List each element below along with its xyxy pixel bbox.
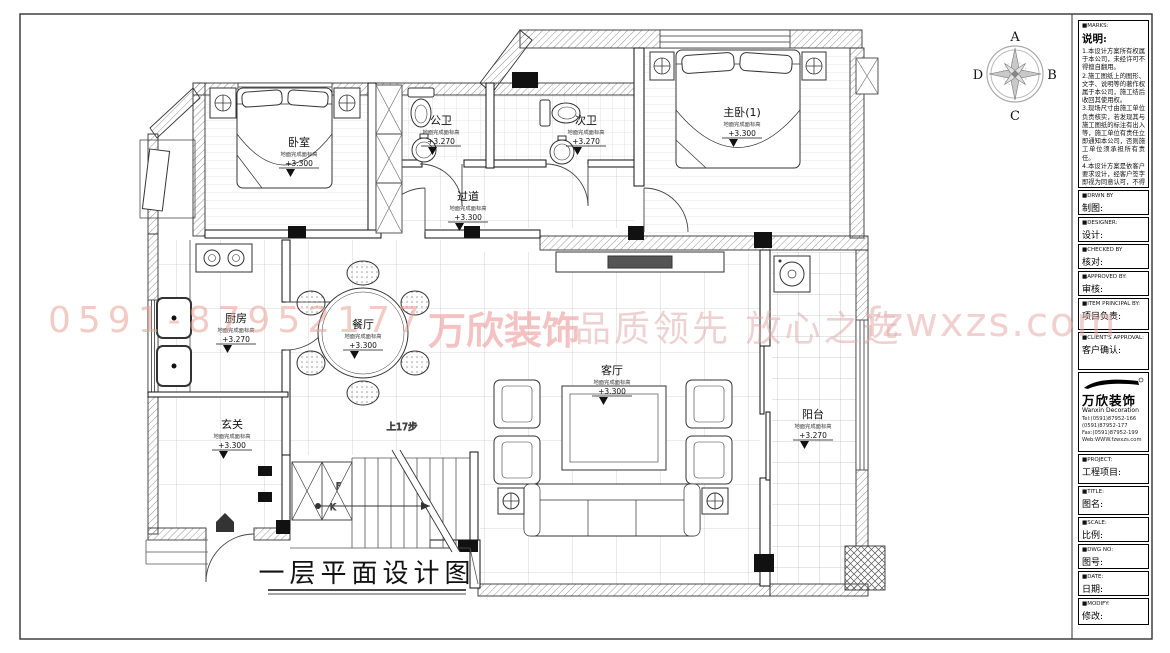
compass-label-left: D: [973, 68, 983, 83]
principal-header: ■ITEM PRINCIPAL BY:: [1082, 301, 1145, 307]
bedroom-wardrobe: [376, 85, 402, 233]
lamp-icon: [215, 95, 231, 111]
scale-header: ■SCALE:: [1082, 520, 1145, 526]
svg-text:厨房: 厨房: [225, 312, 247, 325]
svg-text:餐厅: 餐厅: [352, 317, 374, 331]
project-box: ■PROJECT: 工程项目:: [1078, 454, 1149, 484]
svg-text:公卫: 公卫: [430, 114, 452, 127]
armchair: [686, 380, 732, 428]
svg-text:玄关: 玄关: [221, 417, 243, 431]
drawn-by-label: 制图:: [1082, 201, 1145, 214]
stair-label: 上17步: [386, 422, 417, 433]
drawn-by-header: ■DRWN BY: [1082, 193, 1145, 199]
compass-rose: A B C D: [973, 30, 1057, 124]
svg-text:客厅: 客厅: [601, 363, 623, 377]
company-name: 万欣装饰: [1082, 394, 1145, 407]
sheet-title-label: 图名:: [1082, 497, 1145, 510]
svg-text:卧室: 卧室: [288, 135, 310, 149]
marks-title: 说明:: [1082, 31, 1145, 46]
svg-text:过道: 过道: [457, 189, 479, 203]
company-fax: Fax:(0591)87952-199: [1082, 430, 1145, 437]
designer-header: ■DESIGNER:: [1082, 220, 1145, 226]
coffee-table: [562, 386, 666, 470]
checked-by-header: ■CHECKED BY: [1082, 247, 1145, 253]
company-tel-1: Tel:(0591)87952-166: [1082, 416, 1145, 423]
lamp-icon: [654, 58, 670, 74]
svg-text:+3.270: +3.270: [427, 137, 455, 146]
company-name-en: Wanxin Decoration: [1082, 407, 1145, 414]
company-tel-2: (0591)87952-177: [1082, 423, 1145, 430]
drawn-by-box: ■DRWN BY 制图:: [1078, 190, 1149, 215]
balcony-items: [774, 256, 810, 292]
company-logo-box: 万欣装饰 Wanxin Decoration Tel:(0591)87952-1…: [1078, 372, 1149, 452]
master-window: [660, 30, 790, 48]
svg-text:+3.270: +3.270: [222, 335, 250, 344]
stove-icon: [196, 244, 252, 272]
client-approval-label: 客户确认:: [1082, 343, 1145, 356]
svg-text:阳台: 阳台: [802, 407, 824, 421]
compass-label-right: B: [1047, 68, 1057, 83]
floor-plan-canvas: A B C D: [0, 0, 1170, 653]
svg-text:地面完成面标高: 地面完成面标高: [567, 128, 604, 136]
svg-text:+3.300: +3.300: [598, 387, 626, 396]
date-label: 日期:: [1082, 582, 1145, 595]
date-header: ■DATE:: [1082, 574, 1145, 580]
modify-header: ■MODIFY:: [1082, 601, 1145, 607]
client-approval-box: ■CLIENT'S APPROVAL: 客户确认:: [1078, 332, 1149, 370]
sheet-title-box: ■TITLE: 图名:: [1078, 486, 1149, 515]
armchair: [686, 436, 732, 484]
designer-box: ■DESIGNER: 设计:: [1078, 217, 1149, 242]
svg-text:地面完成面标高: 地面完成面标高: [422, 128, 459, 136]
company-web: Web:WWW.fzwxzs.com: [1082, 437, 1145, 444]
svg-text:地面完成面标高: 地面完成面标高: [794, 422, 831, 430]
drawing-title: 一层平面设计图: [258, 559, 475, 589]
armchair: [494, 380, 540, 428]
svg-text:地面完成面标高: 地面完成面标高: [449, 204, 486, 212]
cabinet-letter-k: K: [330, 503, 336, 513]
checked-by-label: 核对:: [1082, 255, 1145, 268]
lamp-icon: [339, 95, 355, 111]
svg-text:主卧(1): 主卧(1): [723, 106, 761, 119]
cabinet-letter-f: F: [336, 482, 341, 492]
sheet-title-header: ■TITLE:: [1082, 489, 1145, 495]
designer-label: 设计:: [1082, 228, 1145, 241]
svg-text:+3.300: +3.300: [285, 159, 313, 168]
date-box: ■DATE: 日期:: [1078, 571, 1149, 596]
compass-label-top: A: [1009, 30, 1020, 45]
side-table: [702, 488, 728, 514]
project-label: 工程项目:: [1082, 465, 1145, 478]
svg-text:+3.300: +3.300: [454, 213, 482, 222]
compass-label-bottom: C: [1010, 109, 1020, 124]
dwg-no-header: ■DWG NO:: [1082, 547, 1145, 553]
tv-cabinet: [556, 252, 724, 272]
svg-text:地面完成面标高: 地面完成面标高: [280, 150, 317, 158]
svg-text:地面完成面标高: 地面完成面标高: [344, 332, 381, 340]
svg-text:+3.300: +3.300: [349, 341, 377, 350]
svg-text:+3.300: +3.300: [218, 441, 246, 450]
svg-text:+3.270: +3.270: [799, 431, 827, 440]
principal-label: 项目负责:: [1082, 309, 1145, 322]
dwg-no-box: ■DWG NO: 图号:: [1078, 544, 1149, 569]
armchair: [494, 436, 540, 484]
modify-box: ■MODIFY: 修改:: [1078, 598, 1149, 625]
approved-by-box: ■APPROVED BY: 审核:: [1078, 271, 1149, 296]
svg-text:地面完成面标高: 地面完成面标高: [217, 326, 254, 334]
master-wardrobe: [856, 58, 878, 94]
scale-label: 比例:: [1082, 528, 1145, 541]
side-table: [498, 488, 524, 514]
svg-text:地面完成面标高: 地面完成面标高: [723, 120, 760, 128]
svg-text:+3.300: +3.300: [728, 129, 756, 138]
svg-text:地面完成面标高: 地面完成面标高: [213, 432, 250, 440]
client-approval-header: ■CLIENT'S APPROVAL:: [1082, 335, 1145, 341]
principal-box: ■ITEM PRINCIPAL BY: 项目负责:: [1078, 298, 1149, 330]
entry-door: [206, 534, 254, 582]
approved-by-header: ■APPROVED BY:: [1082, 274, 1145, 280]
sofa: [524, 484, 700, 536]
marks-box: ■MARKS: 说明: 1.本设计方案所有权属于本公司，未经许可不得擅自翻用。 …: [1078, 20, 1149, 188]
modify-label: 修改:: [1082, 609, 1145, 622]
balcony-window: [856, 320, 868, 470]
title-block-sidebar: ■MARKS: 说明: 1.本设计方案所有权属于本公司，未经许可不得擅自翻用。 …: [1078, 20, 1149, 625]
scale-box: ■SCALE: 比例:: [1078, 517, 1149, 542]
wanxin-logo-icon: [1082, 377, 1144, 390]
dwg-no-label: 图号:: [1082, 555, 1145, 568]
marks-header: ■MARKS:: [1082, 23, 1145, 29]
approved-by-label: 审核:: [1082, 282, 1145, 295]
lamp-icon: [806, 58, 822, 74]
svg-text:+3.270: +3.270: [572, 137, 600, 146]
svg-text:次卫: 次卫: [575, 113, 597, 127]
drawing-sheet: A B C D: [0, 0, 1170, 653]
project-header: ■PROJECT:: [1082, 457, 1145, 463]
marks-notes: 1.本设计方案所有权属于本公司，未经许可不得擅自翻用。 2.施工图纸上的图形、文…: [1082, 48, 1145, 188]
washing-machine-icon: [774, 256, 810, 292]
svg-text:地面完成面标高: 地面完成面标高: [593, 378, 630, 386]
drawing-title-block: 一层平面设计图: [258, 559, 475, 594]
checked-by-box: ■CHECKED BY 核对:: [1078, 244, 1149, 269]
